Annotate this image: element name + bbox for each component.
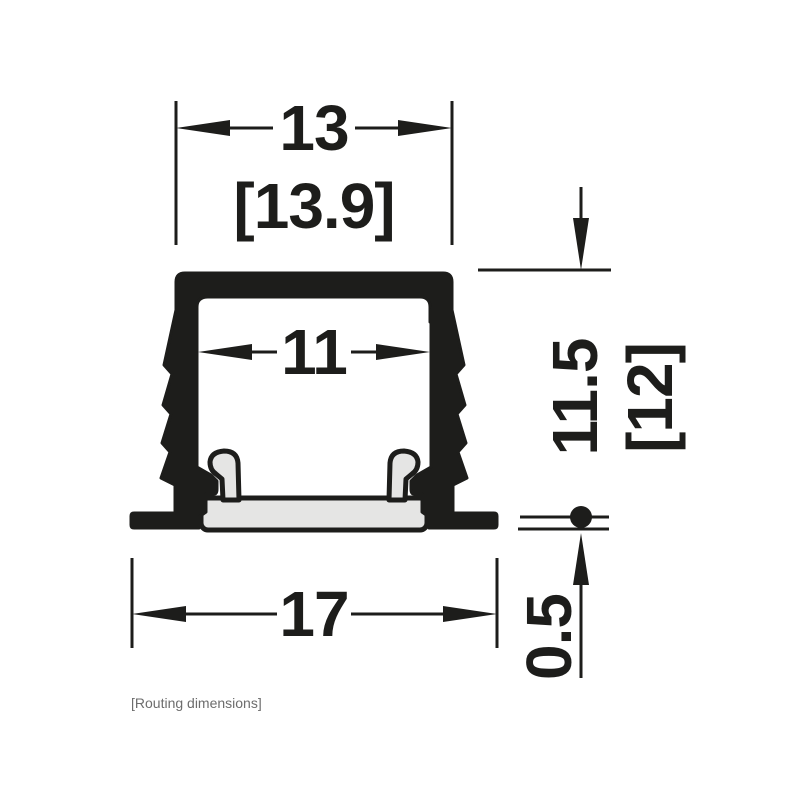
drawing-canvas: 13 [13.9] 11 11.5 [12] (0, 0, 800, 800)
arrow-left-icon (198, 344, 252, 360)
dim-routing-width-value: 13 (279, 92, 348, 164)
dim-lip-protrusion-value: 0.5 (513, 594, 585, 680)
arrow-left-icon (176, 120, 230, 136)
profile-right-wall (411, 310, 497, 528)
dim-routing-depth-value: 11.5 (539, 338, 611, 455)
profile-cross-section (131, 273, 497, 530)
arrow-right-icon (376, 344, 430, 360)
routing-dimensions-caption: [Routing dimensions] (131, 695, 262, 711)
dim-overall-width-value: [13.9] (233, 170, 394, 242)
arrow-right-icon (398, 120, 452, 136)
dimension-height: 11.5 [12] 0.5 (478, 187, 686, 680)
arrow-down-icon (573, 218, 589, 270)
profile-top-wall (176, 273, 452, 322)
profile-left-wall (131, 310, 217, 528)
dimension-inner-width: 11 (198, 316, 430, 388)
arrow-left-icon (132, 606, 186, 622)
dim-inner-width-value: 11 (281, 316, 347, 388)
cover-tray (201, 498, 427, 530)
arrow-up-icon (573, 533, 589, 585)
technical-drawing-svg: 13 [13.9] 11 11.5 [12] (0, 0, 800, 800)
dim-overall-height-value: [12] (614, 343, 686, 453)
dimension-bottom-width: 17 (132, 558, 497, 650)
dimension-top-width: 13 [13.9] (176, 92, 452, 245)
arrow-right-icon (443, 606, 497, 622)
dim-flange-width-value: 17 (279, 578, 348, 650)
